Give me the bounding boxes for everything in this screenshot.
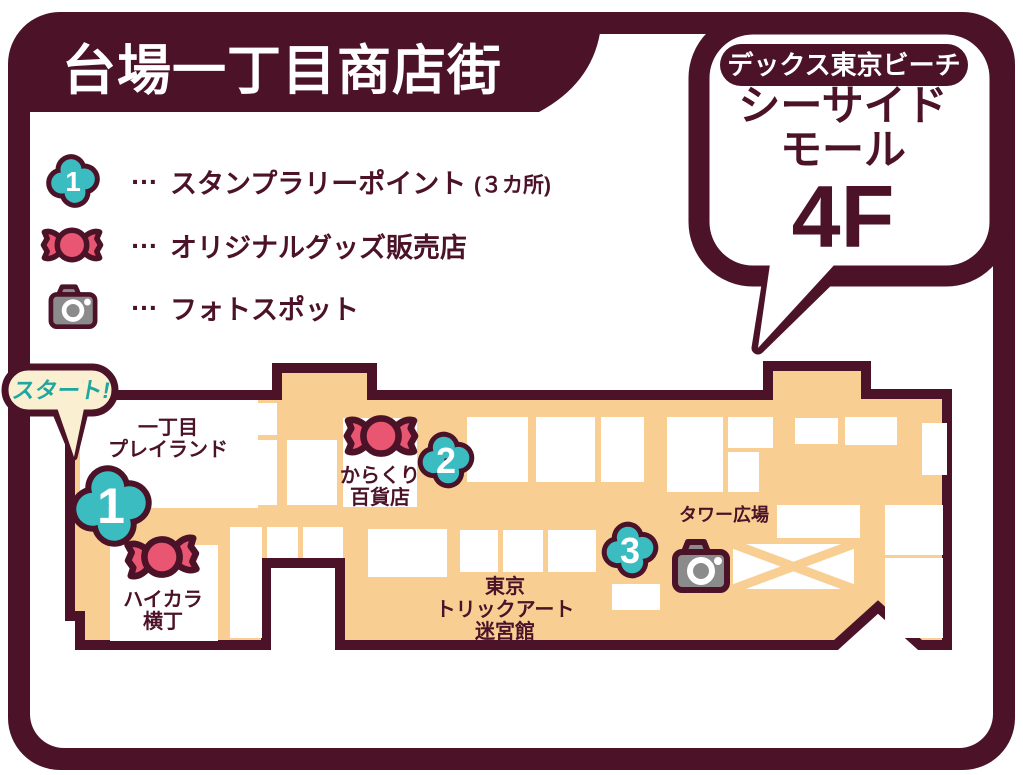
stamp-point-number: 3 xyxy=(620,530,640,571)
legend-note-stamp: (３カ所) xyxy=(474,174,551,197)
area-label-playland-2: プレイランド xyxy=(108,438,228,461)
legend-label-photo: フォトスポット xyxy=(170,295,359,325)
candy-icon-haikara xyxy=(126,536,198,578)
legend-label-stamp: スタンプラリーポイント xyxy=(170,169,466,199)
area-label-trickart-1: 東京 xyxy=(485,574,525,598)
legend-marker-number: 1 xyxy=(65,166,81,197)
candy-icon xyxy=(43,230,100,259)
candy-icon-karakuri xyxy=(347,418,415,453)
room xyxy=(460,530,498,572)
room xyxy=(240,440,277,505)
page-title: 台場一丁目商店街 xyxy=(62,41,502,101)
room xyxy=(230,527,262,638)
room xyxy=(303,527,343,558)
floor-label: 4F xyxy=(792,167,895,266)
stamp-point-number: 2 xyxy=(436,440,456,481)
area-label-playland-1: 一丁目 xyxy=(138,417,198,439)
room xyxy=(777,505,860,538)
area-label-trickart-3: 迷宮館 xyxy=(474,619,535,643)
room xyxy=(287,440,337,505)
floor-map: 一丁目 プレイランド ハイカラ 横丁 からくり 百貨店 東京 トリックアート 迷… xyxy=(64,366,947,645)
room xyxy=(728,417,773,448)
room xyxy=(845,417,897,445)
room xyxy=(612,584,660,610)
camera-icon-tower-plaza xyxy=(675,542,727,590)
room xyxy=(922,423,947,475)
start-label: スタート! xyxy=(10,377,112,403)
room xyxy=(267,527,298,558)
legend-ellipsis: … xyxy=(130,223,158,254)
location-badge-label: デックス東京ビーチ xyxy=(727,50,960,80)
map-poster: 台場一丁目商店街 1 … スタンプラリーポイント (３カ所) … オリジナルグッ… xyxy=(0,0,1023,775)
legend-ellipsis: … xyxy=(130,159,158,190)
room xyxy=(885,505,943,555)
room xyxy=(795,418,838,444)
area-label-haikara-2: 横丁 xyxy=(143,609,183,633)
room xyxy=(601,417,644,482)
legend-label-goods: オリジナルグッズ販売店 xyxy=(170,232,467,263)
room xyxy=(536,417,595,482)
area-label-trickart-2: トリックアート xyxy=(436,598,575,621)
stamp-point-number: 1 xyxy=(97,478,125,534)
room-trickart-entrance xyxy=(368,529,447,577)
area-label-haikara-1: ハイカラ xyxy=(123,589,203,611)
room xyxy=(467,417,528,482)
camera-icon xyxy=(51,287,95,327)
poster-canvas: 台場一丁目商店街 1 … スタンプラリーポイント (３カ所) … オリジナルグッ… xyxy=(0,0,1023,775)
escalator-box xyxy=(733,544,854,589)
legend-ellipsis: … xyxy=(130,285,158,316)
room xyxy=(728,452,759,492)
room xyxy=(667,417,723,492)
area-label-tower: タワー広場 xyxy=(679,504,769,525)
mall-name-line2: モール xyxy=(780,126,906,173)
room xyxy=(503,530,543,572)
room xyxy=(548,530,596,572)
area-label-karakuri-1: からくり xyxy=(340,464,420,487)
area-label-karakuri-2: 百貨店 xyxy=(350,485,410,509)
room xyxy=(234,403,277,435)
room xyxy=(885,558,943,638)
mall-name-line1: シーサイド xyxy=(738,82,947,129)
